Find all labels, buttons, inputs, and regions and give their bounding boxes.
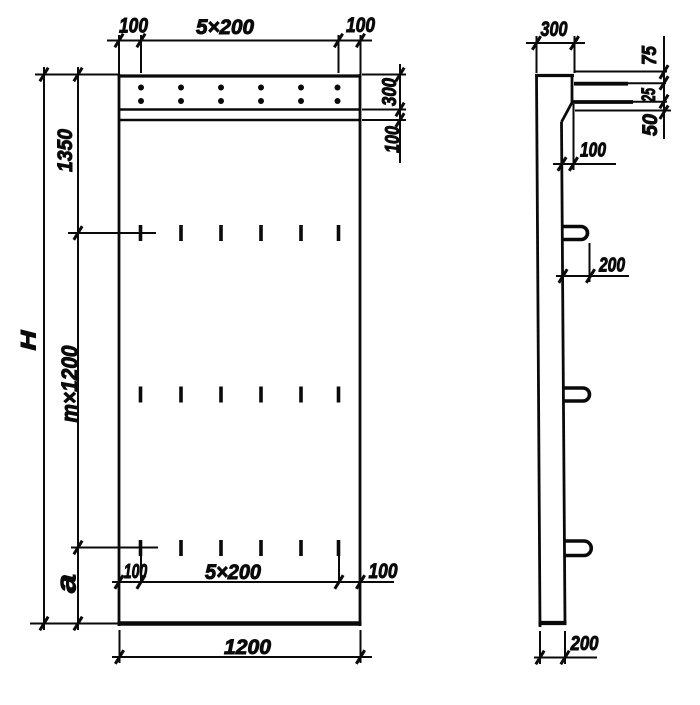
svg-text:300: 300 [379,78,401,106]
svg-text:H: H [17,330,41,351]
svg-text:100: 100 [580,140,606,162]
svg-text:m×1200: m×1200 [57,345,83,422]
svg-text:100: 100 [119,14,148,38]
svg-text:50: 50 [638,114,662,136]
svg-text:1350: 1350 [53,129,77,172]
svg-text:5×200: 5×200 [196,15,254,39]
svg-text:1200: 1200 [224,635,271,659]
svg-text:200: 200 [598,255,625,277]
svg-text:100: 100 [382,126,404,153]
svg-text:200: 200 [570,633,599,655]
svg-text:5×200: 5×200 [205,560,261,584]
svg-text:100: 100 [124,561,148,583]
svg-text:300: 300 [541,17,568,41]
svg-text:100: 100 [346,13,375,37]
svg-text:a: a [51,574,82,593]
svg-text:25: 25 [639,88,660,103]
svg-text:75: 75 [639,45,661,65]
svg-text:100: 100 [369,559,398,583]
